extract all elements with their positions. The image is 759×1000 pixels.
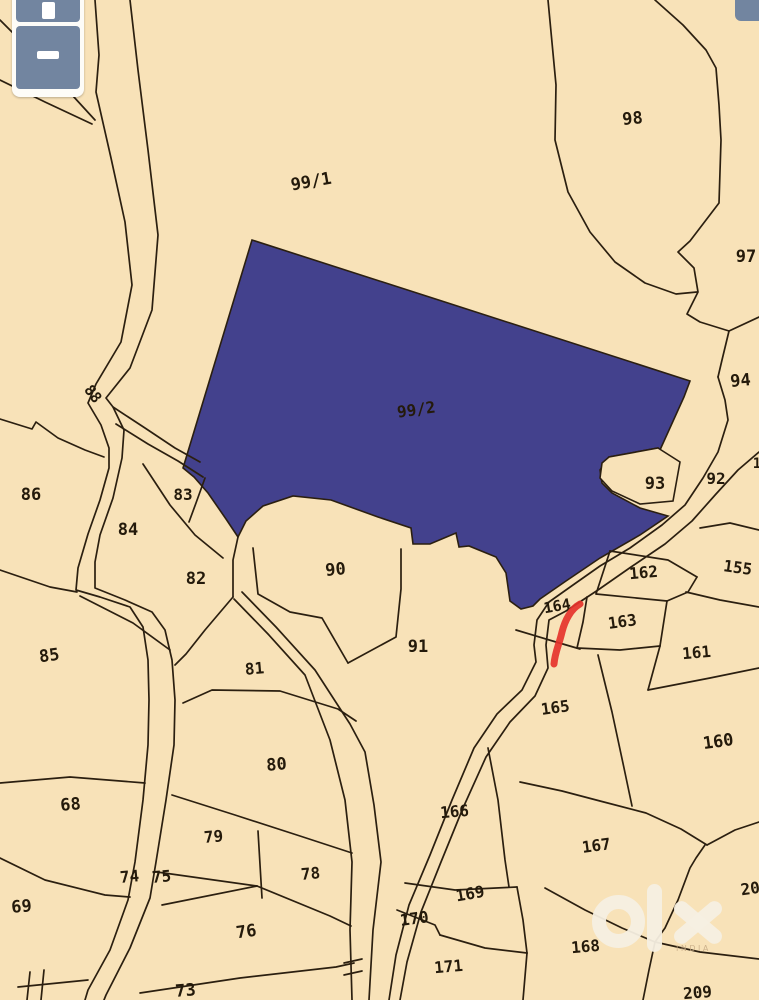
- zoom-out-button[interactable]: [16, 26, 80, 89]
- parcel-label-155: 155: [722, 556, 753, 579]
- parcel-label-1: 1: [753, 456, 759, 472]
- parcel-label-76: 76: [235, 921, 258, 944]
- parcel-label-68: 68: [59, 794, 81, 816]
- parcel-label-161: 161: [681, 642, 711, 663]
- parcel-label-170: 170: [399, 907, 430, 930]
- parcel-label-75: 75: [151, 866, 172, 887]
- parcel-label-98: 98: [621, 108, 643, 130]
- cadastral-map: 9899/19794929311558688838482908581911621…: [0, 0, 759, 1000]
- parcel-label-93: 93: [645, 474, 665, 494]
- parcel-label-69: 69: [10, 896, 32, 918]
- parcel-label-163: 163: [607, 610, 638, 633]
- parcel-label-84: 84: [118, 520, 138, 540]
- minus-icon: [37, 51, 59, 59]
- parcel-label-20: 20: [739, 878, 759, 899]
- parcel-label-167: 167: [581, 834, 612, 857]
- parcel-label-166: 166: [439, 801, 469, 822]
- map-screenshot: 9899/19794929311558688838482908581911621…: [0, 0, 759, 1000]
- parcel-label-83: 83: [173, 485, 192, 504]
- plus-icon: [42, 2, 55, 19]
- parcel-label-94: 94: [729, 370, 751, 392]
- map-zoom-control: [12, 0, 84, 97]
- parcel-label-81: 81: [244, 658, 265, 679]
- parcel-label-91: 91: [408, 637, 428, 657]
- parcel-label-74: 74: [119, 866, 140, 887]
- parcel-label-162: 162: [628, 562, 658, 583]
- zoom-in-button[interactable]: [16, 0, 80, 22]
- parcel-label-171: 171: [433, 956, 463, 977]
- parcel-label-79: 79: [203, 826, 224, 847]
- parcel-label-86: 86: [21, 485, 41, 505]
- parcel-label-82: 82: [186, 569, 206, 589]
- parcel-label-165: 165: [540, 696, 571, 719]
- parcel-label-92: 92: [706, 469, 725, 488]
- parcel-label-209: 209: [682, 982, 712, 1000]
- parcel-label-85: 85: [38, 645, 61, 668]
- parcel-label-90: 90: [324, 559, 346, 581]
- map-corner-button[interactable]: [735, 0, 759, 21]
- parcel-label-160: 160: [702, 730, 735, 754]
- parcel-label-168: 168: [570, 936, 600, 957]
- parcel-label-73: 73: [174, 980, 196, 1000]
- parcel-label-97: 97: [736, 247, 756, 267]
- parcel-label-78: 78: [300, 863, 321, 884]
- parcel-label-80: 80: [265, 754, 287, 776]
